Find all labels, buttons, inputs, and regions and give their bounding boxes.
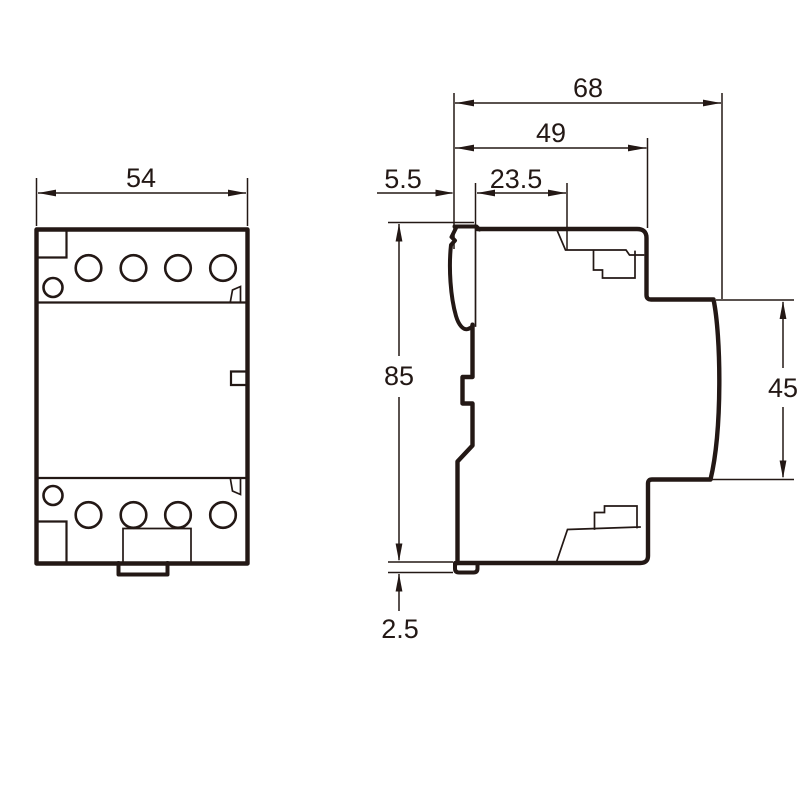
dim-68-arrow-right: [703, 100, 721, 107]
side-bottom-detail: [557, 527, 641, 562]
front-terminal-top-3: [165, 255, 191, 281]
front-terminal-small-top: [44, 278, 63, 297]
technical-drawing: 54 68 49 5.5 23.5: [0, 0, 800, 800]
dim-49-arrow-right: [628, 145, 646, 152]
side-left-edge: [458, 325, 473, 563]
dim-45-label: 45: [768, 373, 798, 403]
dim-85-arrow-top: [396, 224, 403, 242]
side-bottom-detail-tab: [595, 506, 638, 529]
dim-body-depth-49: 49: [455, 118, 648, 228]
dim-5-5-label: 5.5: [384, 164, 422, 194]
dim-85-arrow-bottom: [396, 544, 403, 562]
dim-2-5-label: 2.5: [381, 614, 419, 644]
dim-clip-depth-5-5: 5.5: [377, 164, 454, 196]
dim-49-arrow-left: [456, 145, 474, 152]
dim-85-label: 85: [384, 361, 414, 391]
dim-2-5-arrow-up: [396, 574, 403, 592]
dim-54-arrow-right: [228, 190, 246, 197]
dim-54-arrow-left: [38, 190, 56, 197]
dim-45-arrow-top: [780, 301, 787, 319]
side-view: [450, 227, 719, 573]
front-flag-top: [231, 287, 241, 302]
dim-49-label: 49: [536, 118, 566, 148]
dim-23-5-label: 23.5: [490, 164, 543, 194]
front-terminal-top-1: [76, 255, 102, 281]
dim-23-5-arrow-right: [548, 190, 566, 197]
dim-45-arrow-bottom: [780, 461, 787, 479]
front-terminal-bottom-4: [210, 502, 236, 528]
front-terminal-top-4: [210, 255, 236, 281]
front-terminal-small-bottom: [44, 486, 63, 505]
front-terminal-bottom-1: [76, 502, 102, 528]
front-terminal-bottom-2: [121, 502, 147, 528]
dim-68-arrow-left: [456, 100, 474, 107]
front-bottom-rect: [123, 529, 191, 563]
front-bottom-left-notch: [39, 522, 67, 562]
front-terminal-bottom-3: [165, 502, 191, 528]
side-body-outline: [456, 229, 719, 563]
front-flag-bottom: [231, 480, 241, 495]
dim-foot-protrusion-2-5: 2.5: [381, 573, 453, 645]
front-right-square: [231, 372, 245, 386]
front-terminal-top-2: [121, 255, 147, 281]
dimensions: 54 68 49 5.5 23.5: [37, 73, 799, 644]
dim-rail-offset-23-5: 23.5: [476, 164, 568, 250]
dim-68-label: 68: [573, 73, 603, 103]
dim-54-label: 54: [126, 163, 156, 193]
drawing-canvas: 54 68 49 5.5 23.5: [0, 0, 800, 800]
front-top-left-notch: [39, 231, 67, 258]
dim-front-face-45: 45: [712, 300, 798, 480]
dim-5-5-arrow: [436, 190, 454, 197]
dim-front-width-54: 54: [37, 163, 248, 226]
front-view: [37, 230, 248, 575]
side-top-detail: [557, 229, 644, 255]
